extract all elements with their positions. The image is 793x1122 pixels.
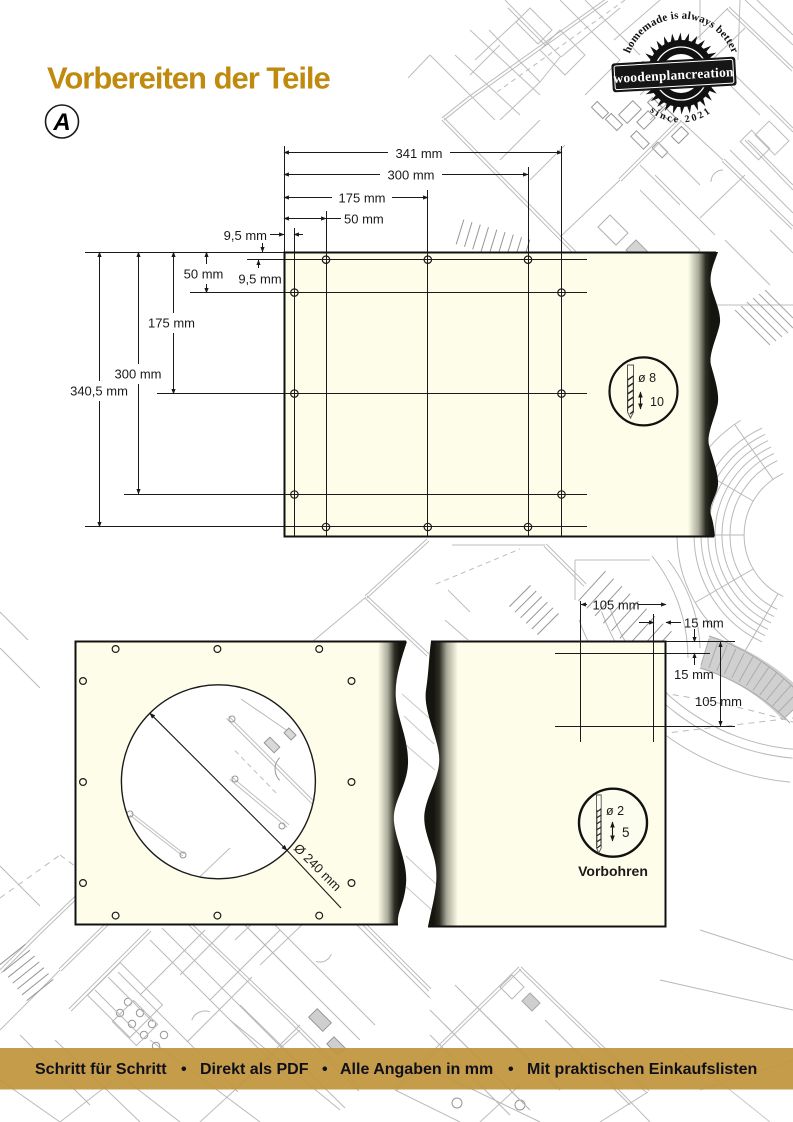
svg-text:175 mm: 175 mm (339, 191, 386, 206)
svg-text:15 mm: 15 mm (684, 616, 724, 631)
svg-text:10: 10 (650, 395, 664, 409)
svg-text:Schritt für Schritt: Schritt für Schritt (35, 1061, 167, 1078)
svg-text:Mit praktischen Einkaufslisten: Mit praktischen Einkaufslisten (527, 1061, 757, 1078)
svg-text:15 mm: 15 mm (674, 667, 714, 682)
svg-text:105 mm: 105 mm (593, 598, 640, 613)
svg-text:5: 5 (622, 825, 630, 840)
svg-text:Vorbereiten der Teile: Vorbereiten der Teile (47, 61, 331, 96)
svg-text:105 mm: 105 mm (695, 694, 742, 709)
svg-text:Vorbohren: Vorbohren (578, 863, 648, 879)
svg-text:340,5 mm: 340,5 mm (70, 384, 128, 399)
svg-text:Alle Angaben in mm: Alle Angaben in mm (340, 1061, 493, 1078)
svg-text:300 mm: 300 mm (115, 367, 162, 382)
svg-text:50 mm: 50 mm (344, 212, 384, 227)
svg-text:175 mm: 175 mm (148, 316, 195, 331)
svg-text:341 mm: 341 mm (396, 146, 443, 161)
svg-text:ø 8: ø 8 (638, 371, 656, 385)
svg-text:9,5 mm: 9,5 mm (224, 228, 267, 243)
svg-text:A: A (52, 109, 70, 136)
svg-text:•: • (508, 1061, 514, 1078)
svg-text:•: • (322, 1061, 328, 1078)
svg-text:50 mm: 50 mm (184, 267, 224, 282)
svg-text:ø 2: ø 2 (606, 804, 624, 818)
svg-text:300 mm: 300 mm (388, 168, 435, 183)
svg-text:Direkt als PDF: Direkt als PDF (200, 1061, 309, 1078)
svg-text:•: • (181, 1061, 187, 1078)
svg-text:9,5 mm: 9,5 mm (238, 272, 281, 287)
